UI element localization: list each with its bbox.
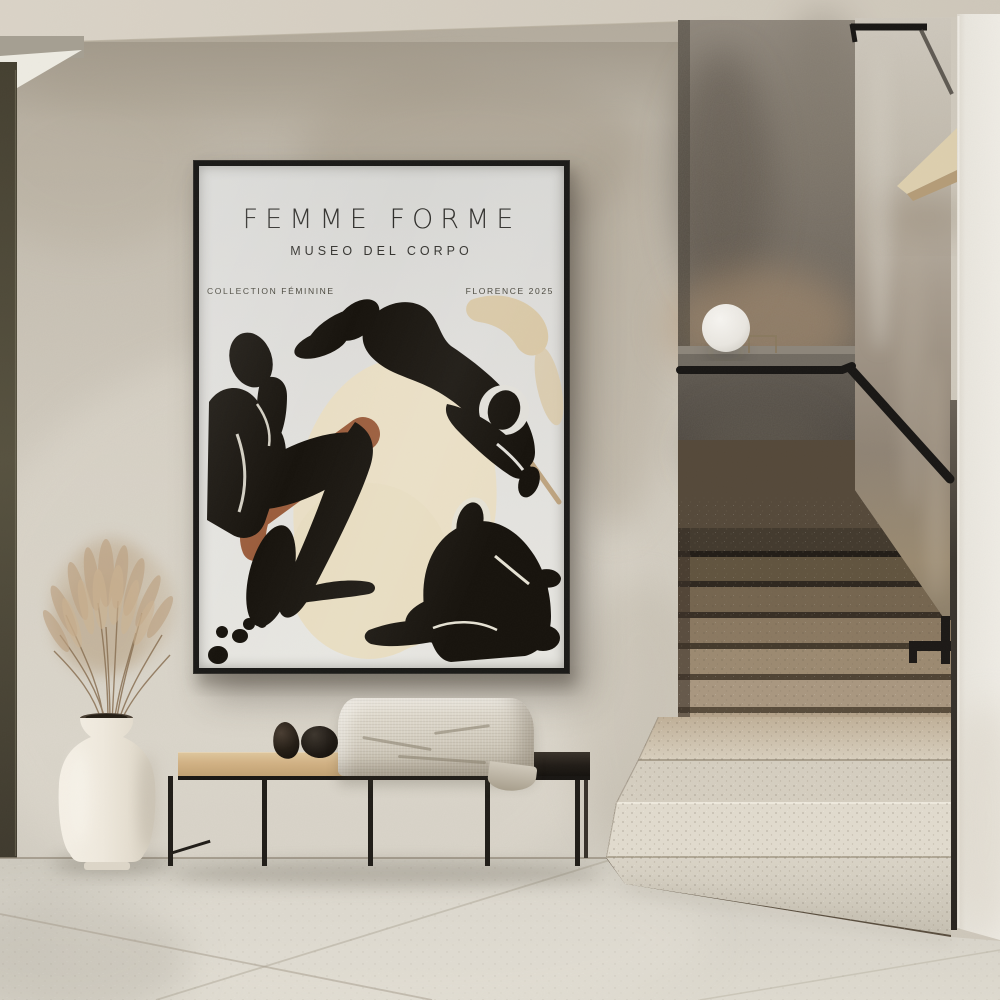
poster-subtitle: MUSEO DEL CORPO [199, 244, 564, 258]
bench-leg-back [584, 772, 588, 858]
poster-print: FEMME FORME MUSEO DEL CORPO COLLECTION F… [199, 166, 564, 668]
door-frame [0, 62, 17, 858]
art-dots [208, 618, 267, 664]
blanket-fold [398, 755, 486, 764]
vase-with-pampas [20, 515, 210, 875]
poster-title: FEMME FORME [199, 204, 564, 235]
throw-blanket [338, 698, 534, 776]
bench-leg [485, 776, 490, 866]
blanket-fold [362, 736, 431, 751]
pampas-grass [39, 535, 177, 723]
vase [59, 713, 157, 870]
bench-leg [575, 776, 580, 866]
blanket-fold [434, 724, 490, 735]
bench-leg [262, 776, 267, 866]
poster-frame: FEMME FORME MUSEO DEL CORPO COLLECTION F… [193, 160, 570, 674]
interior-scene: FEMME FORME MUSEO DEL CORPO COLLECTION F… [0, 0, 1000, 1000]
bench-leg [368, 776, 373, 866]
poster-artwork [199, 286, 564, 668]
art-figure-left [207, 327, 380, 632]
